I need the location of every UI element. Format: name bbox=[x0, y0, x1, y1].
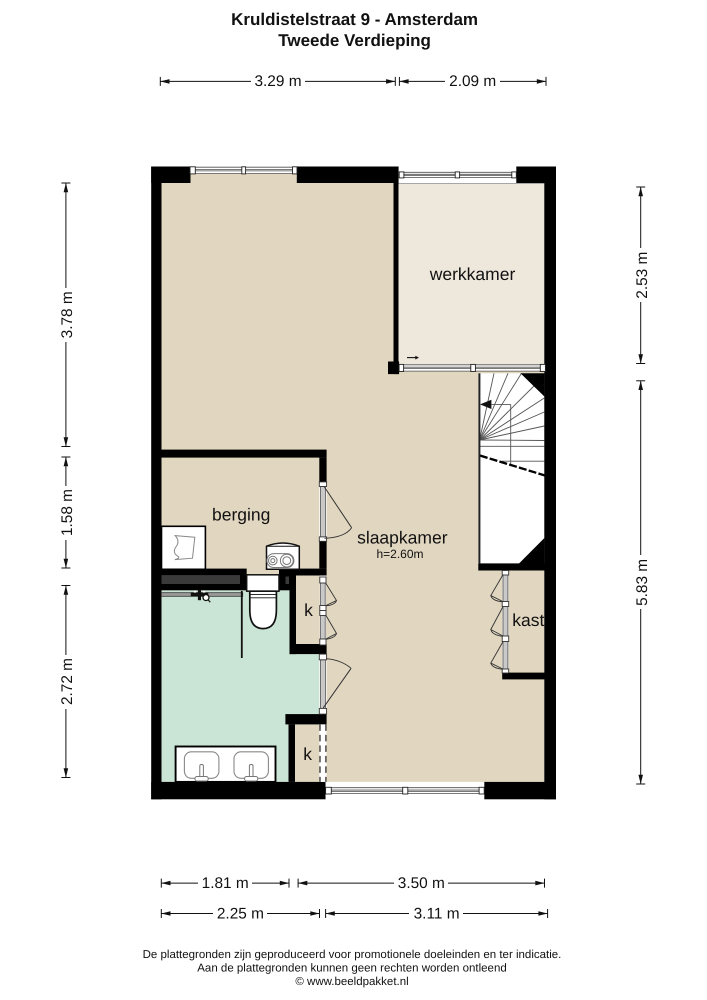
svg-text:5.83 m: 5.83 m bbox=[634, 559, 651, 606]
svg-text:2.53 m: 2.53 m bbox=[634, 252, 651, 299]
svg-text:© www.beeldpakket.nl: © www.beeldpakket.nl bbox=[295, 976, 408, 988]
svg-text:kast: kast bbox=[512, 610, 544, 630]
svg-text:berging: berging bbox=[212, 505, 270, 525]
svg-text:Aan de plattegronden kunnen ge: Aan de plattegronden kunnen geen rechten… bbox=[197, 963, 506, 975]
svg-text:3.11 m: 3.11 m bbox=[414, 905, 460, 922]
svg-text:2.09 m: 2.09 m bbox=[449, 73, 496, 90]
svg-text:3.78 m: 3.78 m bbox=[59, 291, 76, 338]
svg-text:Tweede Verdieping: Tweede Verdieping bbox=[278, 31, 431, 50]
svg-text:2.72 m: 2.72 m bbox=[59, 658, 76, 705]
svg-text:Kruldistelstraat 9 - Amsterdam: Kruldistelstraat 9 - Amsterdam bbox=[231, 10, 478, 29]
svg-text:h=2.60m: h=2.60m bbox=[376, 547, 423, 561]
svg-text:3.50 m: 3.50 m bbox=[398, 875, 445, 892]
svg-text:1.81 m: 1.81 m bbox=[202, 875, 249, 892]
svg-text:De plattegronden zijn geproduc: De plattegronden zijn geproduceerd voor … bbox=[143, 949, 562, 961]
svg-text:2.25 m: 2.25 m bbox=[217, 905, 264, 922]
svg-text:slaapkamer: slaapkamer bbox=[357, 528, 448, 548]
svg-text:1.58 m: 1.58 m bbox=[59, 489, 76, 536]
svg-text:k: k bbox=[303, 744, 312, 764]
svg-text:werkkamer: werkkamer bbox=[429, 264, 516, 284]
svg-text:3.29 m: 3.29 m bbox=[254, 73, 301, 90]
svg-text:k: k bbox=[304, 600, 313, 620]
